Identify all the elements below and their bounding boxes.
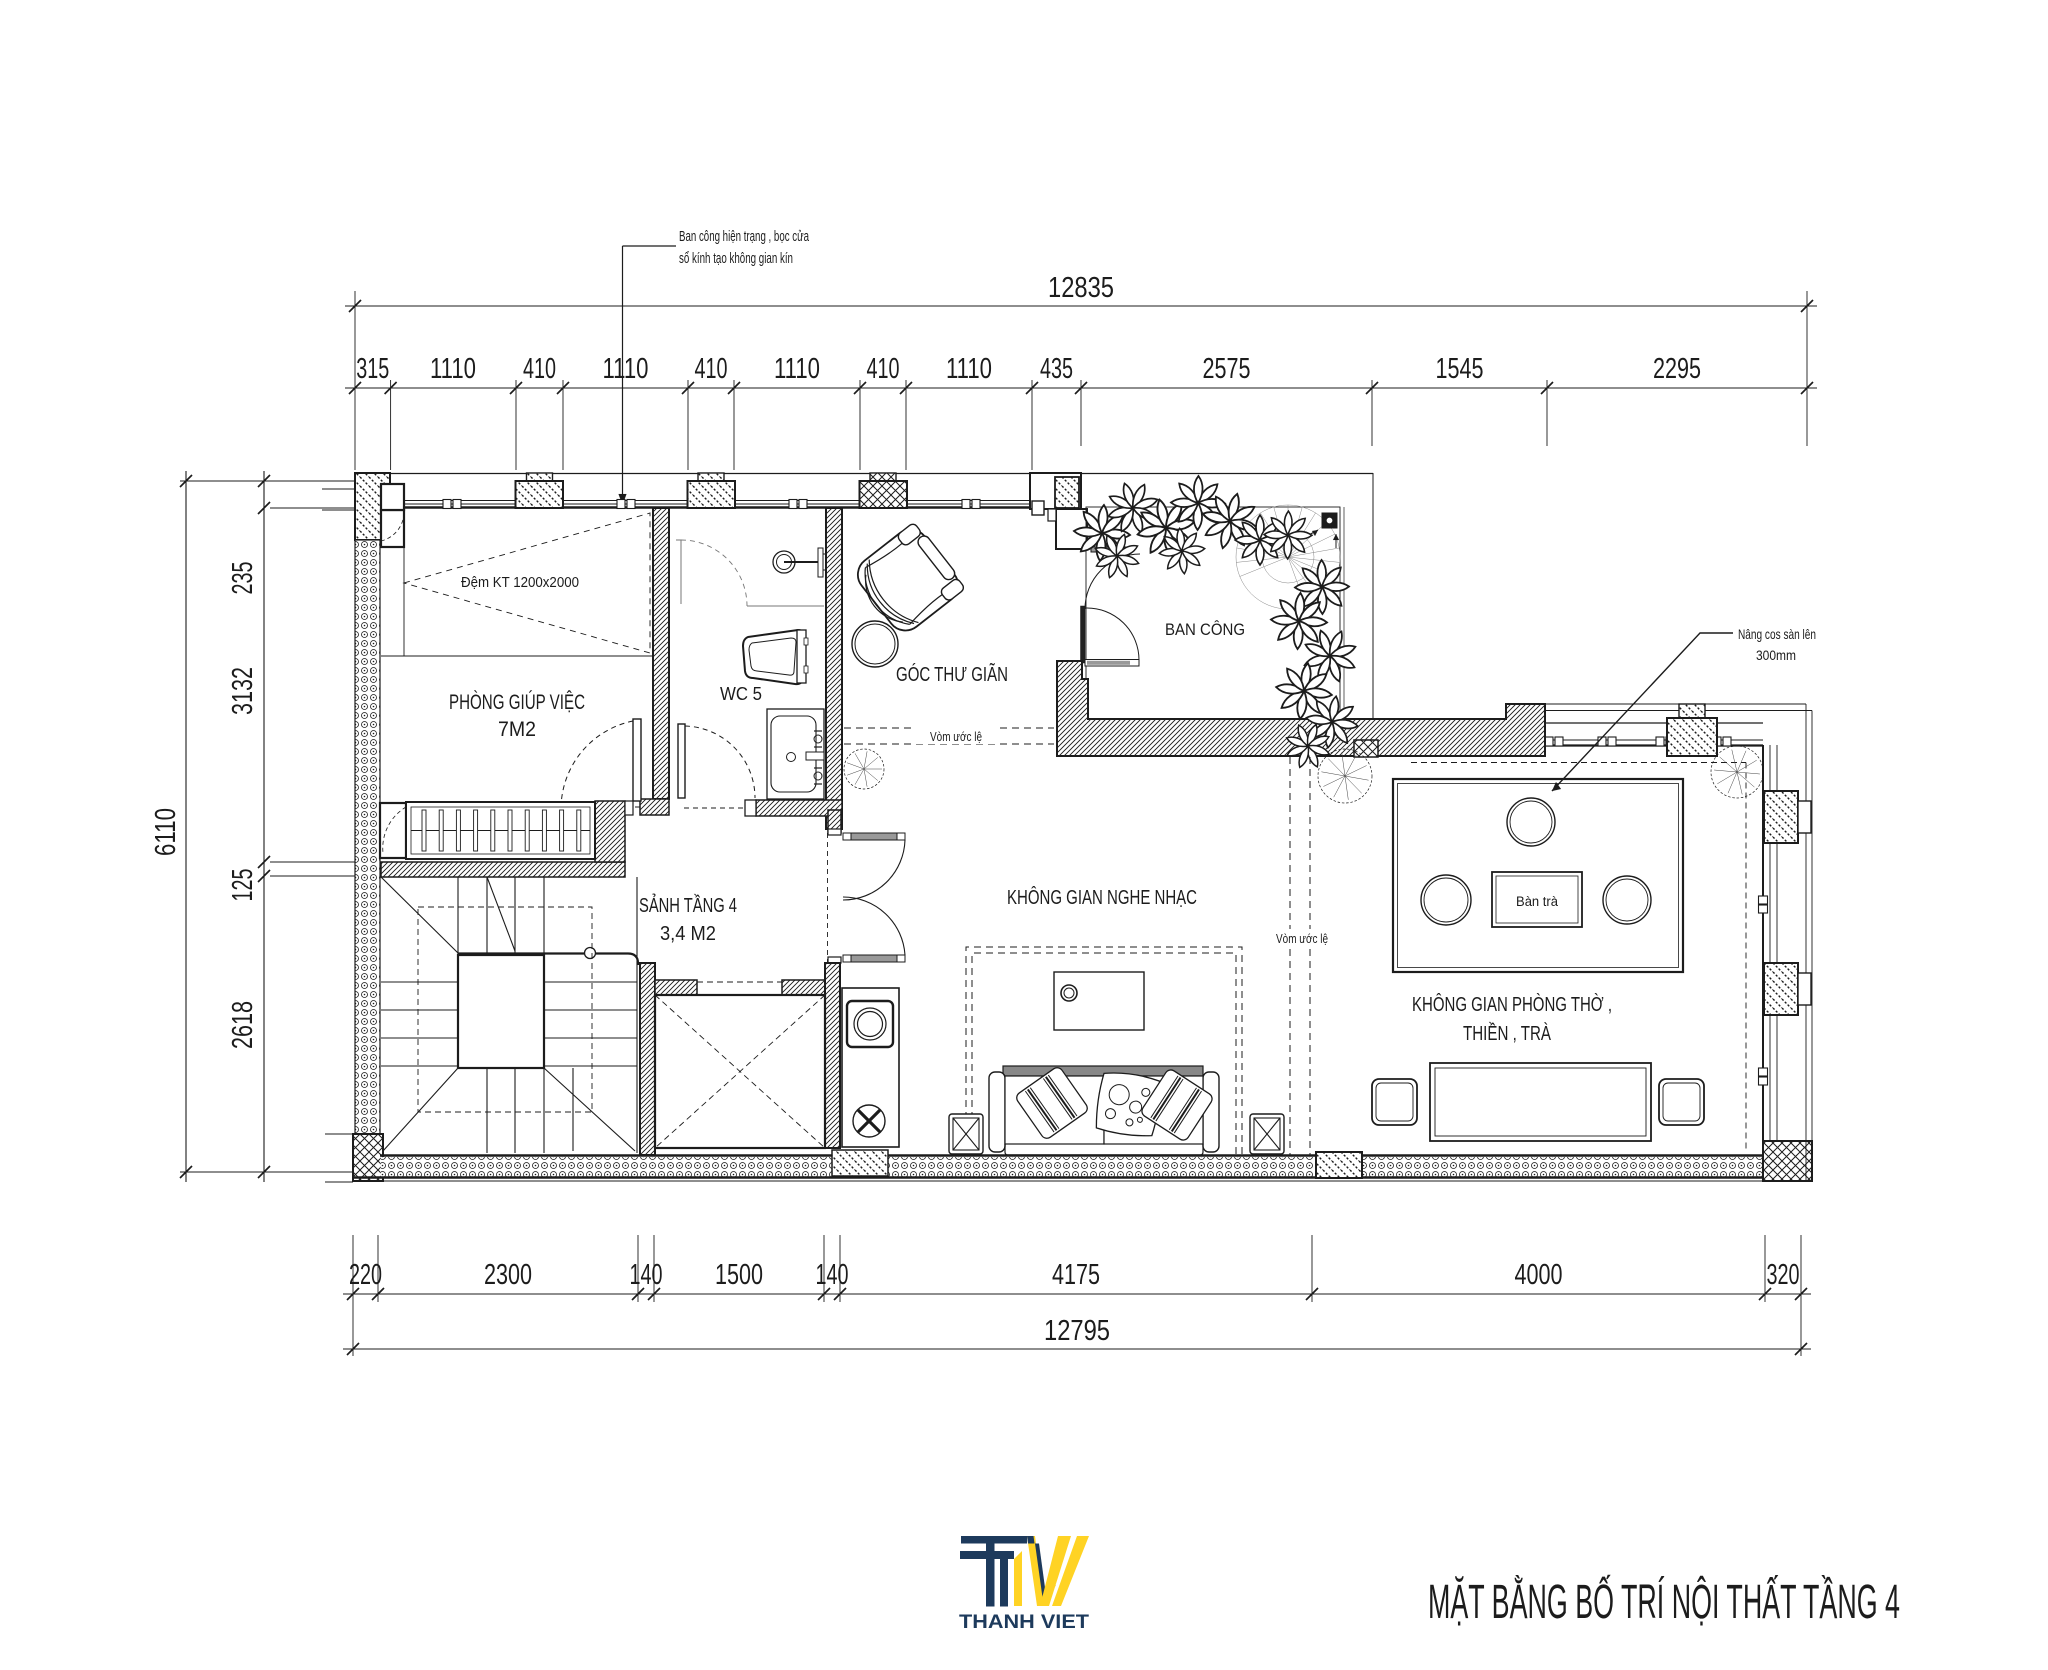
svg-text:410: 410 (695, 353, 728, 385)
svg-text:Bàn trà: Bàn trà (1516, 894, 1558, 909)
svg-text:235: 235 (227, 562, 259, 595)
svg-text:220: 220 (349, 1259, 382, 1291)
svg-text:4000: 4000 (1515, 1259, 1563, 1291)
svg-text:315: 315 (356, 353, 389, 385)
svg-text:WC 5: WC 5 (720, 684, 762, 704)
svg-text:KHÔNG GIAN NGHE NHẠC: KHÔNG GIAN NGHE NHẠC (1007, 886, 1197, 909)
svg-text:BAN CÔNG: BAN CÔNG (1165, 620, 1245, 639)
svg-text:2300: 2300 (484, 1259, 532, 1291)
svg-text:PHÒNG GIÚP VIỆC: PHÒNG GIÚP VIỆC (449, 691, 585, 714)
svg-text:4175: 4175 (1052, 1259, 1100, 1291)
svg-text:410: 410 (867, 353, 900, 385)
svg-text:3132: 3132 (227, 667, 259, 715)
svg-text:THANH VIET: THANH VIET (959, 1612, 1089, 1633)
svg-text:6110: 6110 (150, 808, 182, 856)
svg-text:300mm: 300mm (1756, 647, 1796, 663)
svg-text:2295: 2295 (1653, 353, 1701, 385)
svg-text:7M2: 7M2 (498, 718, 536, 741)
svg-text:12795: 12795 (1044, 1315, 1110, 1347)
svg-text:1110: 1110 (430, 353, 476, 385)
svg-text:1110: 1110 (774, 353, 820, 385)
svg-text:2618: 2618 (227, 1001, 259, 1049)
svg-text:140: 140 (630, 1259, 663, 1291)
svg-text:3,4 M2: 3,4 M2 (660, 923, 716, 945)
svg-text:1545: 1545 (1436, 353, 1484, 385)
svg-text:Nâng cos sàn lên: Nâng cos sàn lên (1738, 626, 1816, 642)
svg-text:1110: 1110 (603, 353, 649, 385)
svg-text:435: 435 (1040, 353, 1073, 385)
svg-text:320: 320 (1767, 1259, 1800, 1291)
svg-text:sổ kính tạo không gian kín: sổ kính tạo không gian kín (679, 251, 793, 267)
svg-text:410: 410 (523, 353, 556, 385)
svg-text:12835: 12835 (1048, 272, 1114, 304)
svg-text:MẶT BẰNG BỐ TRÍ NỘI THẤT TẦNG: MẶT BẰNG BỐ TRÍ NỘI THẤT TẦNG 4 (1428, 1574, 1900, 1629)
svg-text:2575: 2575 (1203, 353, 1251, 385)
svg-text:THIỀN , TRÀ: THIỀN , TRÀ (1463, 1022, 1551, 1045)
svg-text:Vòm ước lệ: Vòm ước lệ (1276, 931, 1328, 946)
svg-text:KHÔNG GIAN PHÒNG THỜ ,: KHÔNG GIAN PHÒNG THỜ , (1412, 993, 1612, 1016)
svg-text:Đệm KT 1200x2000: Đệm KT 1200x2000 (461, 575, 579, 591)
svg-text:Ban công hiện trạng , bọc cửa: Ban công hiện trạng , bọc cửa (679, 229, 810, 245)
svg-text:140: 140 (816, 1259, 849, 1291)
svg-text:GÓC THƯ GIÃN: GÓC THƯ GIÃN (896, 662, 1008, 686)
svg-text:SẢNH TẦNG 4: SẢNH TẦNG 4 (639, 894, 737, 917)
svg-text:1500: 1500 (715, 1259, 763, 1291)
svg-text:125: 125 (227, 869, 259, 902)
svg-text:1110: 1110 (946, 353, 992, 385)
svg-text:Vòm ước lệ: Vòm ước lệ (930, 729, 982, 744)
